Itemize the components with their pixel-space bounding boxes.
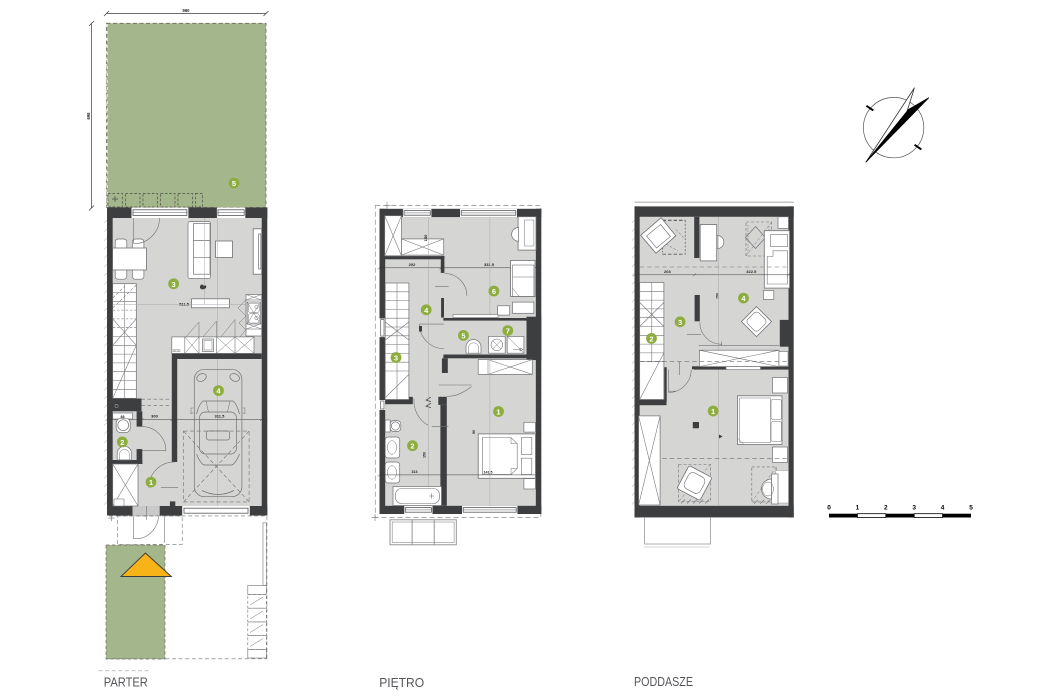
svg-text:960: 960 — [183, 8, 191, 13]
svg-text:3: 3 — [394, 354, 398, 363]
svg-text:PIĘTRO: PIĘTRO — [379, 675, 424, 690]
svg-text:511.5: 511.5 — [179, 302, 190, 307]
svg-text:150: 150 — [423, 234, 428, 241]
svg-text:2: 2 — [649, 334, 653, 343]
svg-text:3: 3 — [912, 505, 916, 512]
svg-text:3: 3 — [172, 280, 176, 289]
svg-text:PODDASZE: PODDASZE — [634, 674, 693, 689]
svg-text:6: 6 — [492, 287, 496, 296]
svg-text:1: 1 — [496, 408, 500, 417]
svg-text:331.5: 331.5 — [484, 262, 495, 267]
svg-text:300: 300 — [151, 414, 158, 419]
svg-text:1: 1 — [711, 407, 715, 416]
svg-text:PARTER: PARTER — [104, 675, 148, 690]
svg-text:2: 2 — [120, 438, 124, 447]
svg-text:7: 7 — [506, 327, 510, 336]
svg-text:2: 2 — [410, 442, 414, 451]
svg-text:313: 313 — [412, 470, 418, 474]
svg-text:203: 203 — [664, 269, 671, 274]
svg-text:0: 0 — [827, 505, 831, 512]
svg-text:5: 5 — [232, 179, 236, 188]
svg-text:202: 202 — [409, 262, 416, 267]
svg-text:2: 2 — [884, 505, 888, 512]
svg-text:3: 3 — [678, 318, 682, 327]
svg-text:88: 88 — [121, 415, 125, 419]
svg-text:5: 5 — [461, 331, 465, 340]
svg-text:150: 150 — [715, 293, 719, 299]
svg-text:1: 1 — [856, 505, 860, 512]
svg-text:1: 1 — [149, 478, 153, 487]
svg-text:322.5: 322.5 — [746, 269, 757, 274]
svg-text:90: 90 — [472, 430, 476, 434]
svg-text:4: 4 — [941, 505, 945, 512]
svg-text:150: 150 — [423, 452, 427, 458]
svg-text:311.5: 311.5 — [215, 414, 226, 419]
svg-text:698: 698 — [86, 112, 91, 120]
svg-text:141.5: 141.5 — [484, 470, 493, 474]
svg-text:5: 5 — [969, 505, 973, 512]
